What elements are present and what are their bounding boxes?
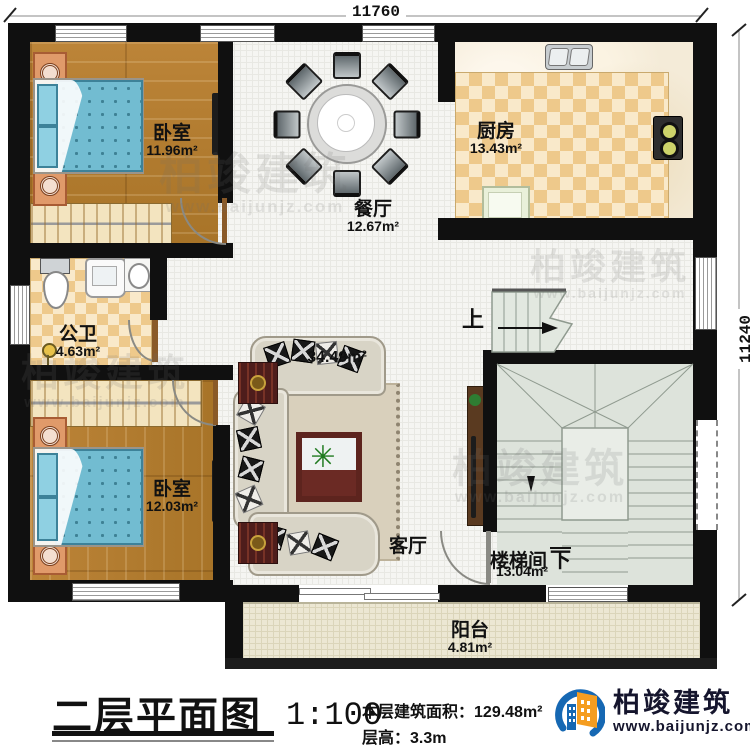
room-label-living: 客厅 [389, 537, 427, 556]
room-area-stairwell: 13.04m² [496, 564, 548, 578]
floor-plan: 11760 11240 [0, 0, 750, 749]
room-label-kitchen: 厨房 [477, 122, 515, 141]
floor-area-label: 本层建筑面积： [362, 704, 474, 721]
floor-height-line: 层高：3.3m [362, 724, 446, 748]
room-area-living: 34.49m² [307, 350, 367, 366]
room-label-bedroom1: 卧室 [153, 124, 191, 143]
brand-logo-icon [553, 684, 605, 740]
floor-height-value: 3.3m [410, 730, 446, 747]
room-area-bedroom2: 12.03m² [146, 499, 198, 513]
stairs [0, 0, 750, 749]
room-label-dining: 餐厅 [354, 200, 392, 219]
title-underline-thick [52, 731, 274, 736]
brand-name: 柏竣建筑 [613, 689, 750, 719]
brand-logo: 柏竣建筑 www.baijunjz.com [553, 680, 749, 744]
stairs-down-label: 下 [550, 547, 571, 572]
floor-height-label: 层高： [362, 730, 410, 747]
brand-website: www.baijunjz.com [613, 718, 750, 735]
stairs-up-label: 上 [462, 302, 484, 334]
room-area-dining: 12.67m² [347, 219, 399, 233]
room-area-balcony: 4.81m² [448, 640, 492, 654]
room-label-bedroom2: 卧室 [153, 480, 191, 499]
title-underline-thin [52, 740, 274, 742]
room-area-bedroom1: 11.96m² [146, 143, 197, 157]
room-label-bathroom: 公卫 [59, 325, 97, 344]
room-area-kitchen: 13.43m² [470, 141, 522, 155]
room-area-bathroom: 4.63m² [56, 344, 100, 358]
floor-area-line: 本层建筑面积：129.48m² [362, 698, 543, 722]
room-label-balcony: 阳台 [451, 621, 489, 640]
floor-area-value: 129.48m² [474, 704, 543, 721]
